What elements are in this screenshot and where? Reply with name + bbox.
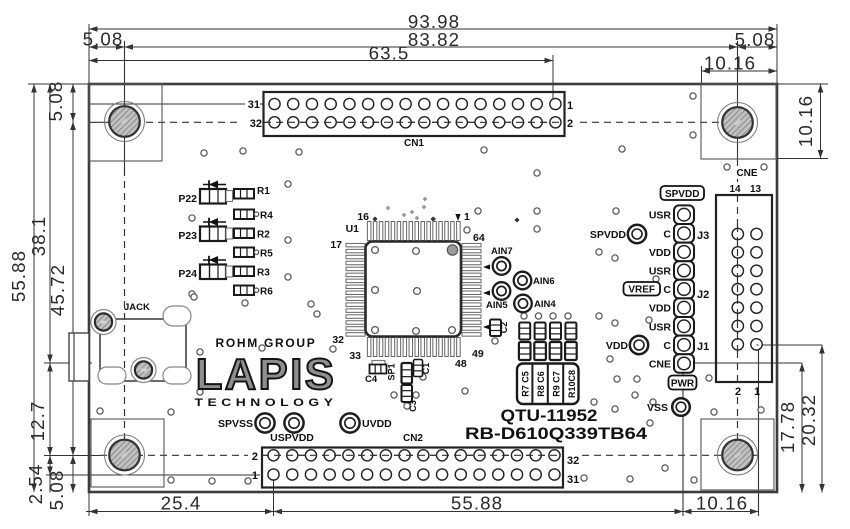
svg-text:AIN4: AIN4 bbox=[534, 299, 556, 310]
svg-text:C2: C2 bbox=[499, 322, 509, 334]
svg-text:C1: C1 bbox=[421, 363, 431, 375]
svg-text:5.08: 5.08 bbox=[46, 470, 67, 511]
svg-text:SPVDD: SPVDD bbox=[590, 229, 627, 241]
svg-text:10.16: 10.16 bbox=[696, 493, 748, 514]
svg-text:CN1: CN1 bbox=[404, 138, 424, 149]
svg-text:1: 1 bbox=[252, 470, 258, 482]
svg-text:1: 1 bbox=[754, 386, 760, 398]
svg-text:CNE: CNE bbox=[736, 168, 757, 179]
svg-text:55.88: 55.88 bbox=[451, 493, 503, 514]
svg-text:SPVSS: SPVSS bbox=[218, 418, 253, 430]
svg-text:R5: R5 bbox=[260, 249, 273, 260]
svg-text:R4: R4 bbox=[260, 211, 273, 222]
svg-text:20.32: 20.32 bbox=[798, 394, 819, 446]
svg-text:32: 32 bbox=[250, 118, 262, 130]
svg-text:C4: C4 bbox=[365, 374, 378, 385]
svg-text:2: 2 bbox=[567, 118, 573, 130]
svg-text:CN2: CN2 bbox=[403, 433, 423, 444]
svg-text:J1: J1 bbox=[697, 341, 709, 353]
svg-text:PWR: PWR bbox=[671, 378, 695, 389]
svg-text:32: 32 bbox=[567, 455, 579, 467]
svg-text:R8 C6: R8 C6 bbox=[536, 371, 546, 397]
svg-text:UVDD: UVDD bbox=[362, 418, 392, 430]
svg-text:C: C bbox=[663, 340, 671, 352]
svg-text:45.72: 45.72 bbox=[47, 264, 68, 316]
svg-text:C: C bbox=[663, 284, 671, 296]
svg-text:R6: R6 bbox=[260, 287, 273, 298]
svg-text:31: 31 bbox=[567, 474, 579, 486]
svg-text:J2: J2 bbox=[697, 289, 709, 301]
svg-text:5.08: 5.08 bbox=[45, 81, 66, 122]
svg-text:C: C bbox=[663, 228, 671, 240]
svg-text:AIN5: AIN5 bbox=[486, 300, 508, 311]
svg-text:SP1: SP1 bbox=[387, 363, 397, 380]
svg-text:AIN6: AIN6 bbox=[533, 276, 555, 287]
svg-text:2: 2 bbox=[252, 451, 258, 463]
svg-text:R3: R3 bbox=[257, 268, 270, 279]
svg-text:R1: R1 bbox=[257, 186, 270, 197]
svg-text:USR: USR bbox=[649, 210, 672, 222]
svg-text:63.5: 63.5 bbox=[369, 42, 410, 63]
svg-text:38.1: 38.1 bbox=[28, 216, 49, 257]
svg-text:R10C8: R10C8 bbox=[567, 370, 577, 398]
svg-text:10.16: 10.16 bbox=[704, 53, 756, 74]
svg-text:17.78: 17.78 bbox=[777, 401, 798, 453]
svg-text:P24: P24 bbox=[178, 268, 197, 280]
svg-text:AIN7: AIN7 bbox=[491, 246, 513, 257]
svg-text:QTU-11952: QTU-11952 bbox=[501, 406, 598, 425]
svg-text:VDD: VDD bbox=[649, 303, 672, 315]
svg-text:16: 16 bbox=[357, 211, 369, 223]
svg-text:1: 1 bbox=[464, 211, 470, 223]
svg-text:14: 14 bbox=[729, 184, 741, 195]
svg-text:12.7: 12.7 bbox=[27, 401, 48, 442]
svg-text:C3: C3 bbox=[408, 400, 418, 412]
svg-text:5.08: 5.08 bbox=[735, 29, 776, 50]
svg-text:2.54: 2.54 bbox=[25, 464, 46, 505]
svg-text:48: 48 bbox=[455, 358, 467, 370]
svg-text:J3: J3 bbox=[697, 230, 709, 242]
svg-text:13: 13 bbox=[750, 184, 762, 195]
svg-text:17: 17 bbox=[330, 239, 342, 251]
svg-text:JACK: JACK bbox=[124, 302, 150, 313]
svg-text:33: 33 bbox=[349, 350, 361, 362]
svg-text:R2: R2 bbox=[257, 230, 270, 241]
svg-text:1: 1 bbox=[567, 100, 573, 112]
svg-text:49: 49 bbox=[472, 348, 484, 360]
svg-text:64: 64 bbox=[473, 232, 485, 244]
svg-text:VDD: VDD bbox=[606, 340, 629, 352]
svg-text:VSS: VSS bbox=[647, 402, 668, 414]
svg-text:31: 31 bbox=[248, 99, 260, 111]
svg-text:U1: U1 bbox=[346, 223, 360, 235]
svg-text:R9 C7: R9 C7 bbox=[552, 371, 562, 397]
svg-text:RB-D610Q339TB64: RB-D610Q339TB64 bbox=[465, 424, 648, 443]
svg-text:VREF: VREF bbox=[628, 285, 655, 296]
svg-text:CNE: CNE bbox=[649, 359, 671, 371]
svg-text:32: 32 bbox=[332, 334, 344, 346]
svg-text:2: 2 bbox=[735, 386, 741, 398]
svg-text:55.88: 55.88 bbox=[8, 250, 29, 302]
svg-text:USR: USR bbox=[649, 266, 672, 278]
svg-text:25.4: 25.4 bbox=[161, 493, 202, 514]
svg-text:ROHM GROUP: ROHM GROUP bbox=[216, 336, 317, 350]
svg-text:USPVDD: USPVDD bbox=[270, 432, 314, 444]
svg-text:R7 C5: R7 C5 bbox=[521, 371, 531, 397]
svg-text:83.82: 83.82 bbox=[408, 29, 460, 50]
svg-text:P22: P22 bbox=[178, 193, 197, 205]
svg-text:LAPIS: LAPIS bbox=[196, 351, 337, 399]
svg-text:SPVDD: SPVDD bbox=[665, 189, 699, 200]
svg-text:TECHNOLOGY: TECHNOLOGY bbox=[195, 397, 338, 409]
svg-text:10.16: 10.16 bbox=[795, 95, 816, 147]
svg-text:P23: P23 bbox=[178, 230, 197, 242]
svg-text:USR: USR bbox=[649, 321, 672, 333]
svg-text:VDD: VDD bbox=[649, 247, 672, 259]
svg-text:5.08: 5.08 bbox=[83, 29, 124, 50]
